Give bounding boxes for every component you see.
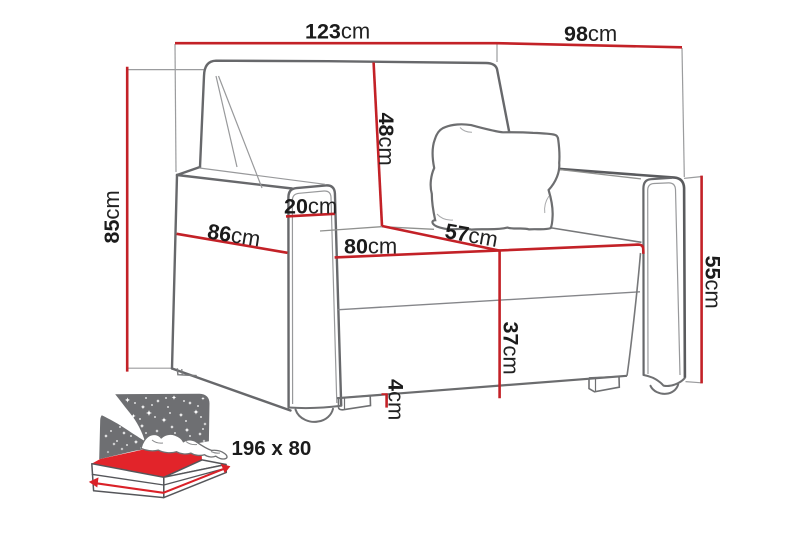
svg-text:48cm: 48cm [374,113,399,166]
svg-text:80cm: 80cm [344,233,397,258]
svg-text:85cm: 85cm [99,190,124,243]
svg-text:98cm: 98cm [564,21,617,46]
svg-text:55cm: 55cm [701,256,726,309]
svg-text:20cm: 20cm [284,194,337,219]
svg-text:4cm: 4cm [384,379,409,420]
svg-text:196 x 80: 196 x 80 [232,437,312,460]
svg-text:37cm: 37cm [499,322,524,375]
svg-text:123cm: 123cm [305,19,370,44]
